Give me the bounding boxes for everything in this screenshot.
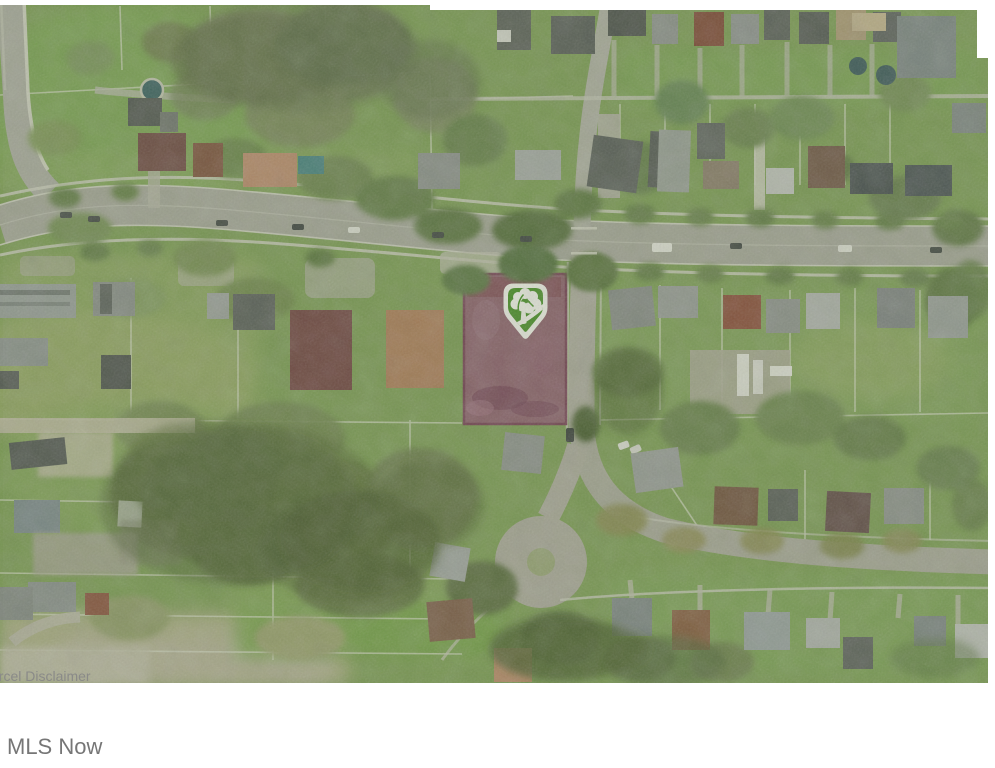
svg-text:arcel Disclaimer: arcel Disclaimer [0,668,91,684]
svg-text:MLS Now: MLS Now [7,734,102,759]
